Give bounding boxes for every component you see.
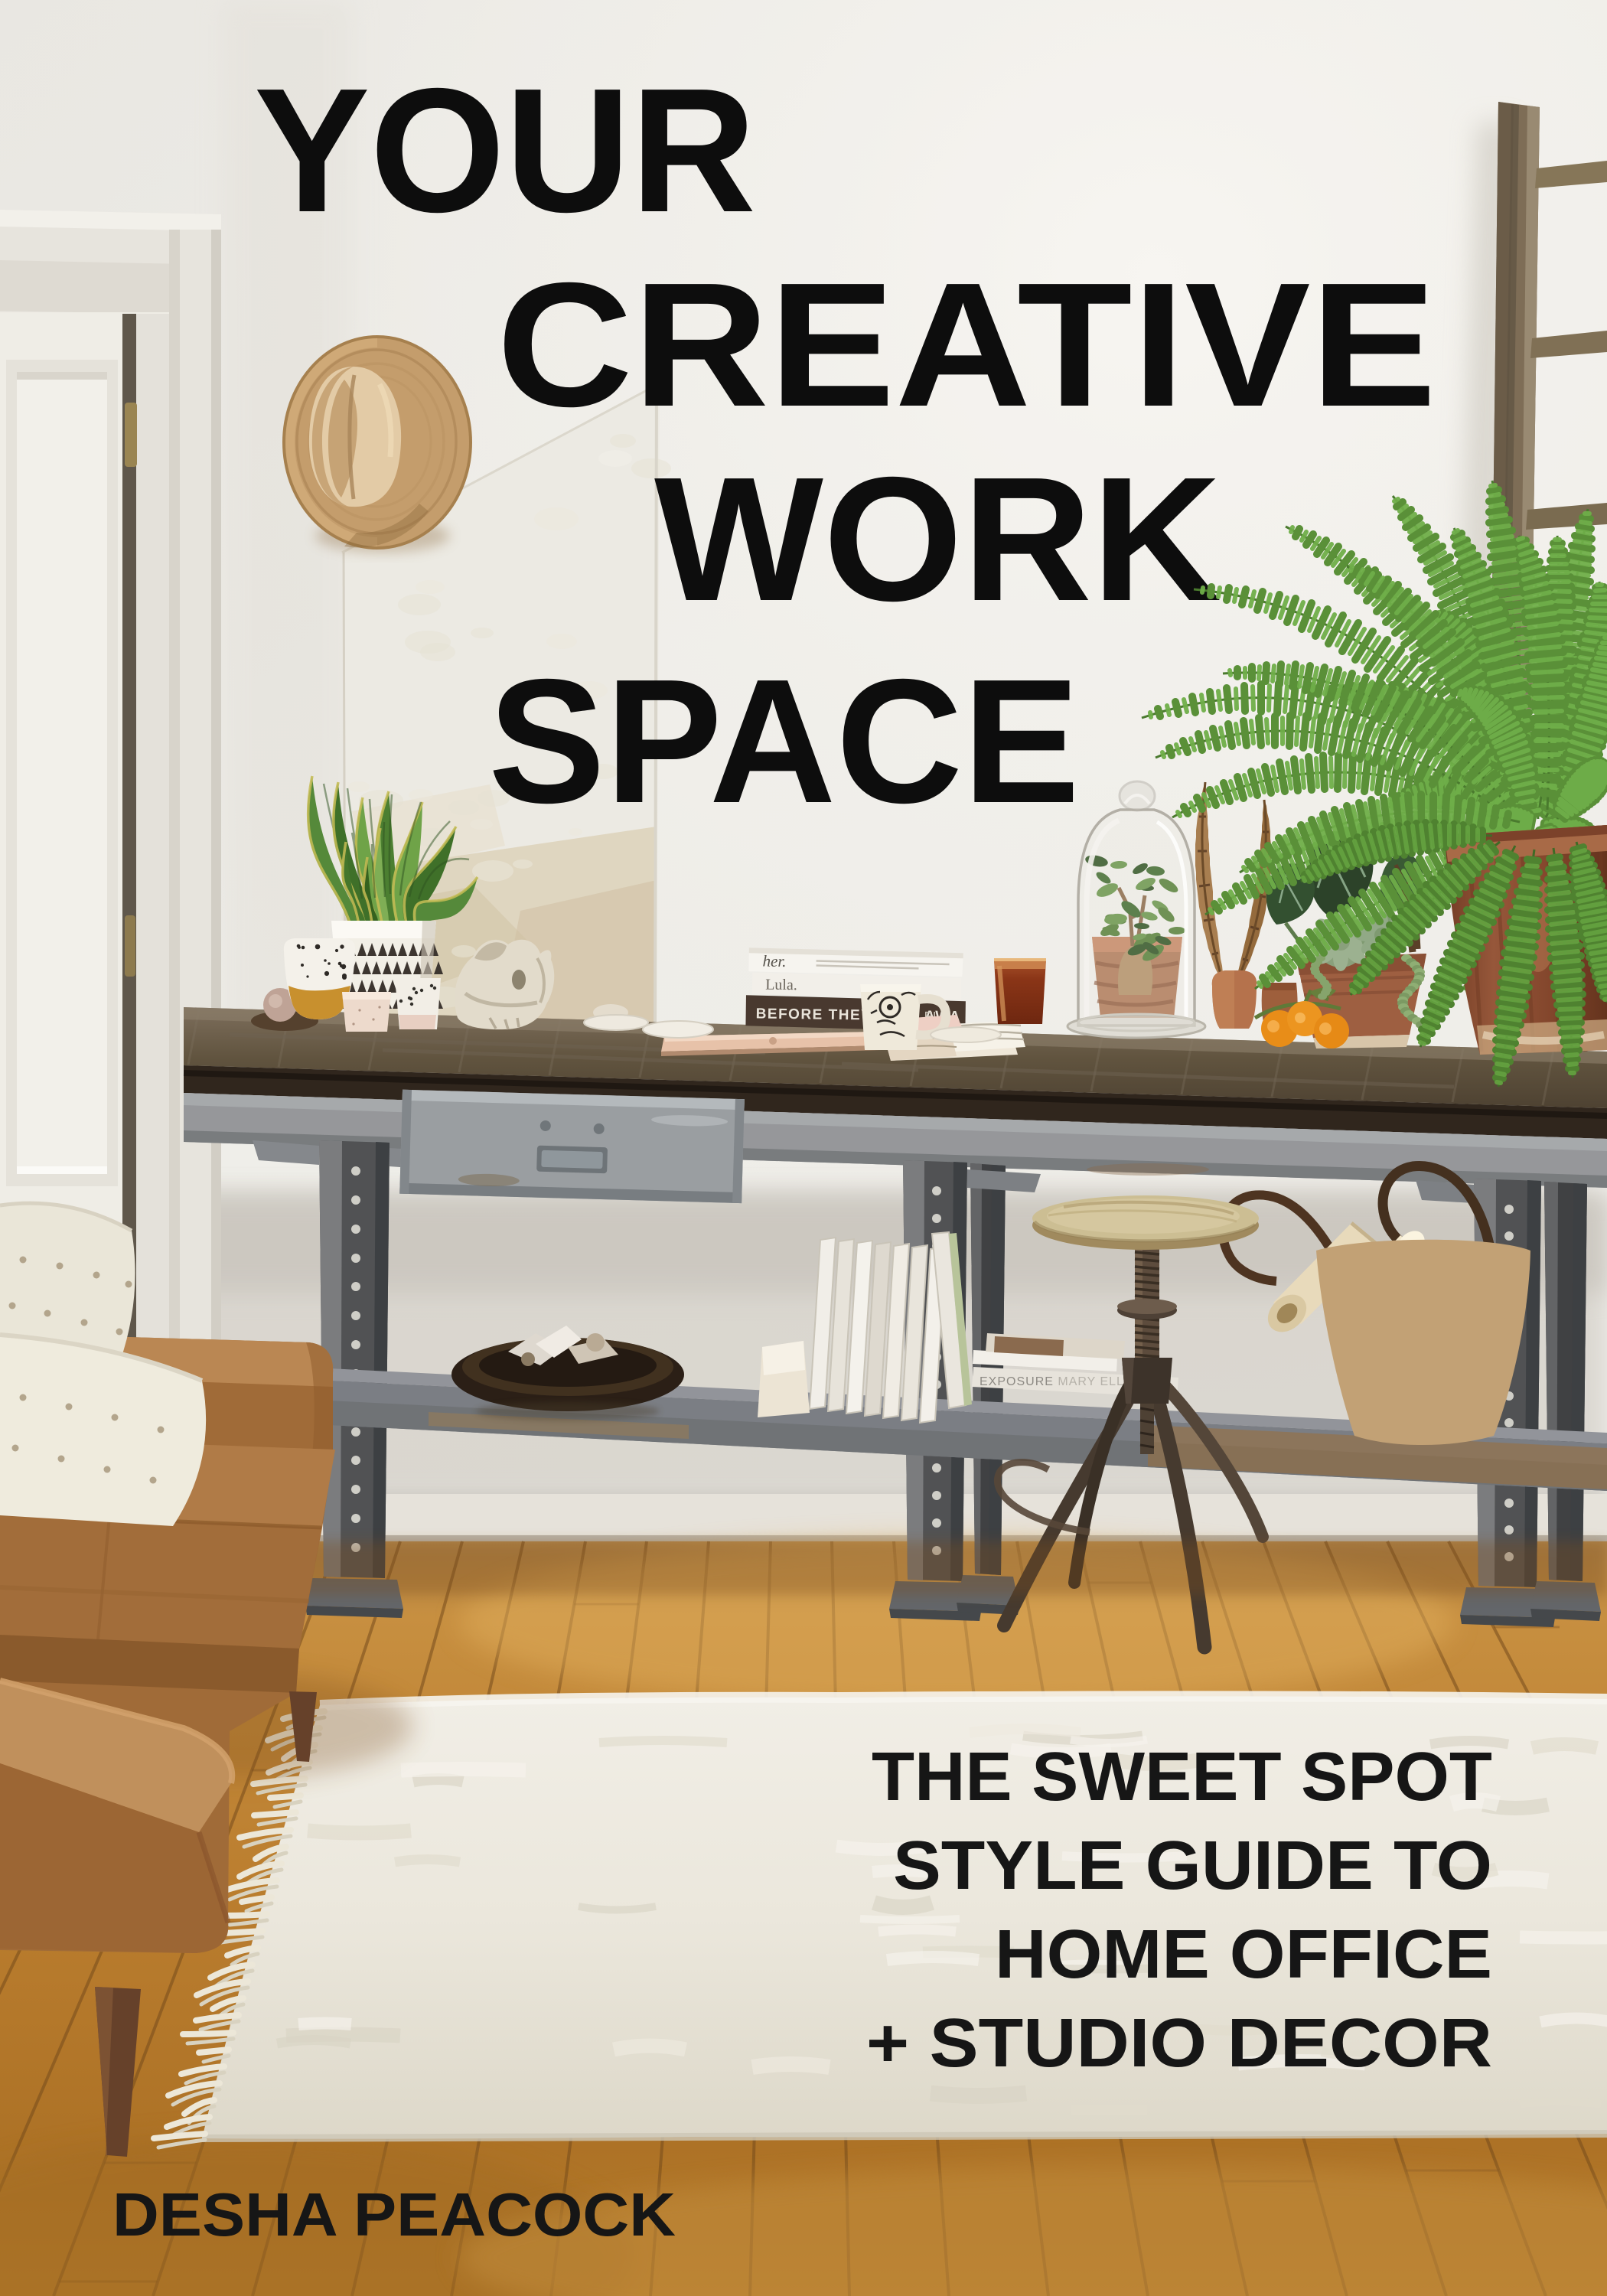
svg-text:STYLE GUIDE TO: STYLE GUIDE TO [893, 1828, 1492, 1904]
svg-text:SPACE: SPACE [488, 642, 1080, 840]
svg-text:THE SWEET SPOT: THE SWEET SPOT [872, 1739, 1492, 1815]
svg-text:+ STUDIO DECOR: + STUDIO DECOR [866, 2005, 1492, 2082]
svg-text:WORK: WORK [654, 440, 1221, 638]
svg-text:HOME OFFICE: HOME OFFICE [995, 1916, 1492, 1993]
svg-text:YOUR: YOUR [254, 51, 756, 249]
svg-text:her.: her. [762, 952, 786, 970]
svg-text:Lula.: Lula. [765, 977, 797, 994]
svg-text:CREATIVE: CREATIVE [497, 246, 1436, 443]
svg-text:DESHA PEACOCK: DESHA PEACOCK [112, 2180, 676, 2249]
